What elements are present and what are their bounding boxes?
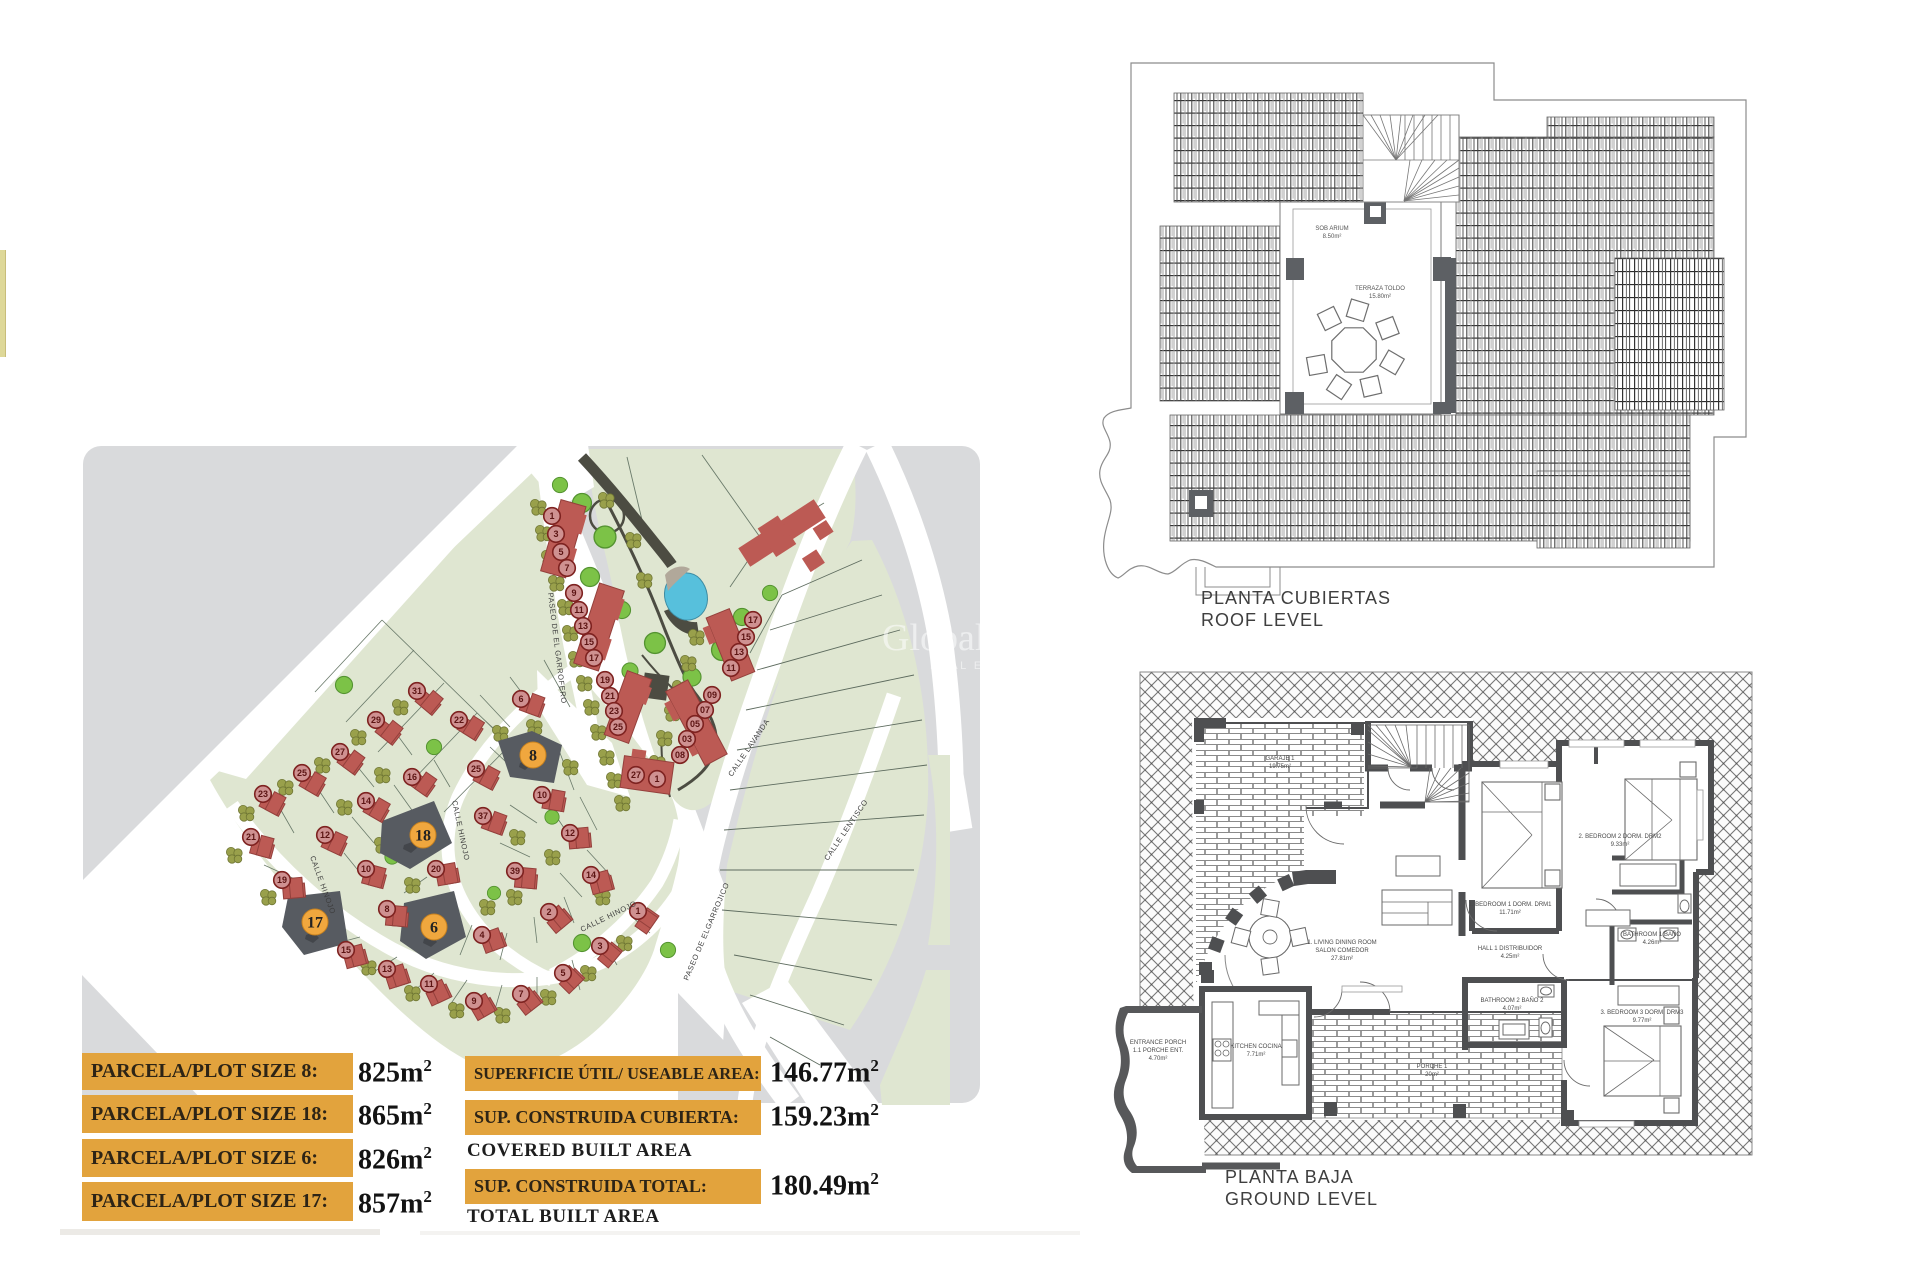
svg-text:13: 13 [382, 964, 392, 974]
svg-text:17: 17 [589, 653, 599, 663]
svg-text:PORCHE 1: PORCHE 1 [1417, 1064, 1448, 1070]
svg-text:PLANTA BAJA: PLANTA BAJA [1225, 1167, 1354, 1187]
svg-text:REAL ESTATE: REAL ESTATE [930, 660, 982, 672]
svg-text:25: 25 [297, 768, 307, 778]
svg-text:08: 08 [675, 750, 685, 760]
svg-text:03: 03 [682, 734, 692, 744]
svg-text:23: 23 [258, 789, 268, 799]
svg-text:TERRAZA TOLDO: TERRAZA TOLDO [1355, 286, 1405, 292]
svg-text:4.70m²: 4.70m² [1149, 1056, 1168, 1062]
svg-text:10: 10 [361, 864, 371, 874]
svg-text:27: 27 [631, 770, 641, 780]
svg-text:11: 11 [424, 979, 434, 989]
svg-text:15: 15 [741, 632, 751, 642]
svg-text:BATHROOM 2 BAÑO 2: BATHROOM 2 BAÑO 2 [1481, 997, 1545, 1004]
svg-text:1. BEDROOM 1 DORM. DRM1: 1. BEDROOM 1 DORM. DRM1 [1468, 902, 1552, 908]
svg-text:17: 17 [307, 915, 323, 932]
svg-text:GARAJE 1: GARAJE 1 [1265, 756, 1295, 762]
svg-text:20: 20 [431, 864, 441, 874]
svg-text:31: 31 [412, 686, 422, 696]
svg-text:6: 6 [518, 694, 523, 704]
svg-text:37: 37 [478, 811, 488, 821]
svg-text:1.1 PORCHE ENT.: 1.1 PORCHE ENT. [1133, 1048, 1184, 1054]
svg-text:11: 11 [726, 663, 736, 673]
svg-text:HALL 1 DISTRIBUIDOR: HALL 1 DISTRIBUIDOR [1478, 946, 1543, 952]
svg-text:4.26m²: 4.26m² [1643, 940, 1662, 946]
svg-text:1. LIVING DINING ROOM: 1. LIVING DINING ROOM [1307, 940, 1376, 946]
svg-text:09: 09 [707, 690, 717, 700]
svg-text:12: 12 [565, 828, 575, 838]
svg-text:9.77m²: 9.77m² [1633, 1018, 1652, 1024]
svg-text:17: 17 [748, 615, 758, 625]
svg-text:6: 6 [430, 920, 438, 937]
svg-text:13: 13 [734, 647, 744, 657]
svg-text:07: 07 [700, 705, 710, 715]
svg-text:2: 2 [546, 907, 551, 917]
svg-text:ROOF LEVEL: ROOF LEVEL [1201, 610, 1324, 630]
svg-text:7: 7 [564, 563, 569, 573]
svg-text:4: 4 [479, 930, 484, 940]
svg-text:BATHROOM 1 BAÑO: BATHROOM 1 BAÑO [1623, 931, 1681, 938]
svg-text:39: 39 [510, 866, 520, 876]
svg-text:27.81m²: 27.81m² [1331, 956, 1353, 962]
svg-text:15.80m²: 15.80m² [1369, 294, 1391, 300]
svg-text:14: 14 [586, 870, 596, 880]
svg-text:1: 1 [549, 511, 554, 521]
svg-text:11.71m²: 11.71m² [1499, 910, 1521, 916]
svg-text:15: 15 [341, 945, 351, 955]
svg-text:SOB ARIUM: SOB ARIUM [1315, 226, 1348, 232]
svg-text:11: 11 [574, 605, 584, 615]
svg-text:22: 22 [454, 715, 464, 725]
svg-text:2. BEDROOM 2 DORM. DRM2: 2. BEDROOM 2 DORM. DRM2 [1578, 834, 1662, 840]
svg-text:21: 21 [246, 832, 256, 842]
svg-text:23: 23 [609, 706, 619, 716]
svg-text:9: 9 [471, 996, 476, 1006]
svg-text:27: 27 [335, 747, 345, 757]
svg-text:8.50m²: 8.50m² [1323, 234, 1342, 240]
svg-text:29: 29 [371, 715, 381, 725]
svg-text:12: 12 [320, 830, 330, 840]
svg-text:KITCHEN COCINA: KITCHEN COCINA [1230, 1044, 1281, 1050]
svg-text:13: 13 [578, 621, 588, 631]
svg-text:18: 18 [415, 828, 431, 845]
svg-text:GROUND LEVEL: GROUND LEVEL [1225, 1189, 1378, 1209]
svg-text:5: 5 [558, 547, 563, 557]
svg-text:20m²: 20m² [1425, 1072, 1439, 1078]
svg-text:21: 21 [605, 691, 615, 701]
svg-text:3: 3 [553, 529, 558, 539]
svg-text:19: 19 [600, 675, 610, 685]
svg-text:5: 5 [560, 968, 565, 978]
svg-text:15: 15 [584, 637, 594, 647]
svg-text:05: 05 [690, 719, 700, 729]
svg-text:SALON COMEDOR: SALON COMEDOR [1315, 948, 1369, 954]
svg-text:4.25m²: 4.25m² [1501, 954, 1520, 960]
svg-text:10: 10 [537, 790, 547, 800]
svg-text:16: 16 [407, 772, 417, 782]
svg-text:19.75m²: 19.75m² [1269, 764, 1291, 770]
svg-text:7.71m²: 7.71m² [1247, 1052, 1266, 1058]
svg-text:4.07m²: 4.07m² [1503, 1006, 1522, 1012]
svg-text:1: 1 [654, 774, 659, 784]
svg-text:8: 8 [384, 904, 389, 914]
svg-text:25: 25 [471, 764, 481, 774]
svg-text:19: 19 [277, 875, 287, 885]
svg-text:14: 14 [361, 796, 371, 806]
svg-text:25: 25 [613, 722, 623, 732]
svg-text:PLANTA CUBIERTAS: PLANTA CUBIERTAS [1201, 588, 1391, 608]
svg-text:9.33m²: 9.33m² [1611, 842, 1630, 848]
svg-text:3. BEDROOM 3 DORM. DRM3: 3. BEDROOM 3 DORM. DRM3 [1600, 1010, 1684, 1016]
svg-text:3: 3 [597, 941, 602, 951]
svg-text:7: 7 [518, 989, 523, 999]
svg-text:ENTRANCE PORCH: ENTRANCE PORCH [1130, 1040, 1186, 1046]
svg-text:GlobalSpa: GlobalSpa [882, 617, 982, 659]
svg-text:9: 9 [571, 588, 576, 598]
svg-text:8: 8 [529, 748, 537, 765]
